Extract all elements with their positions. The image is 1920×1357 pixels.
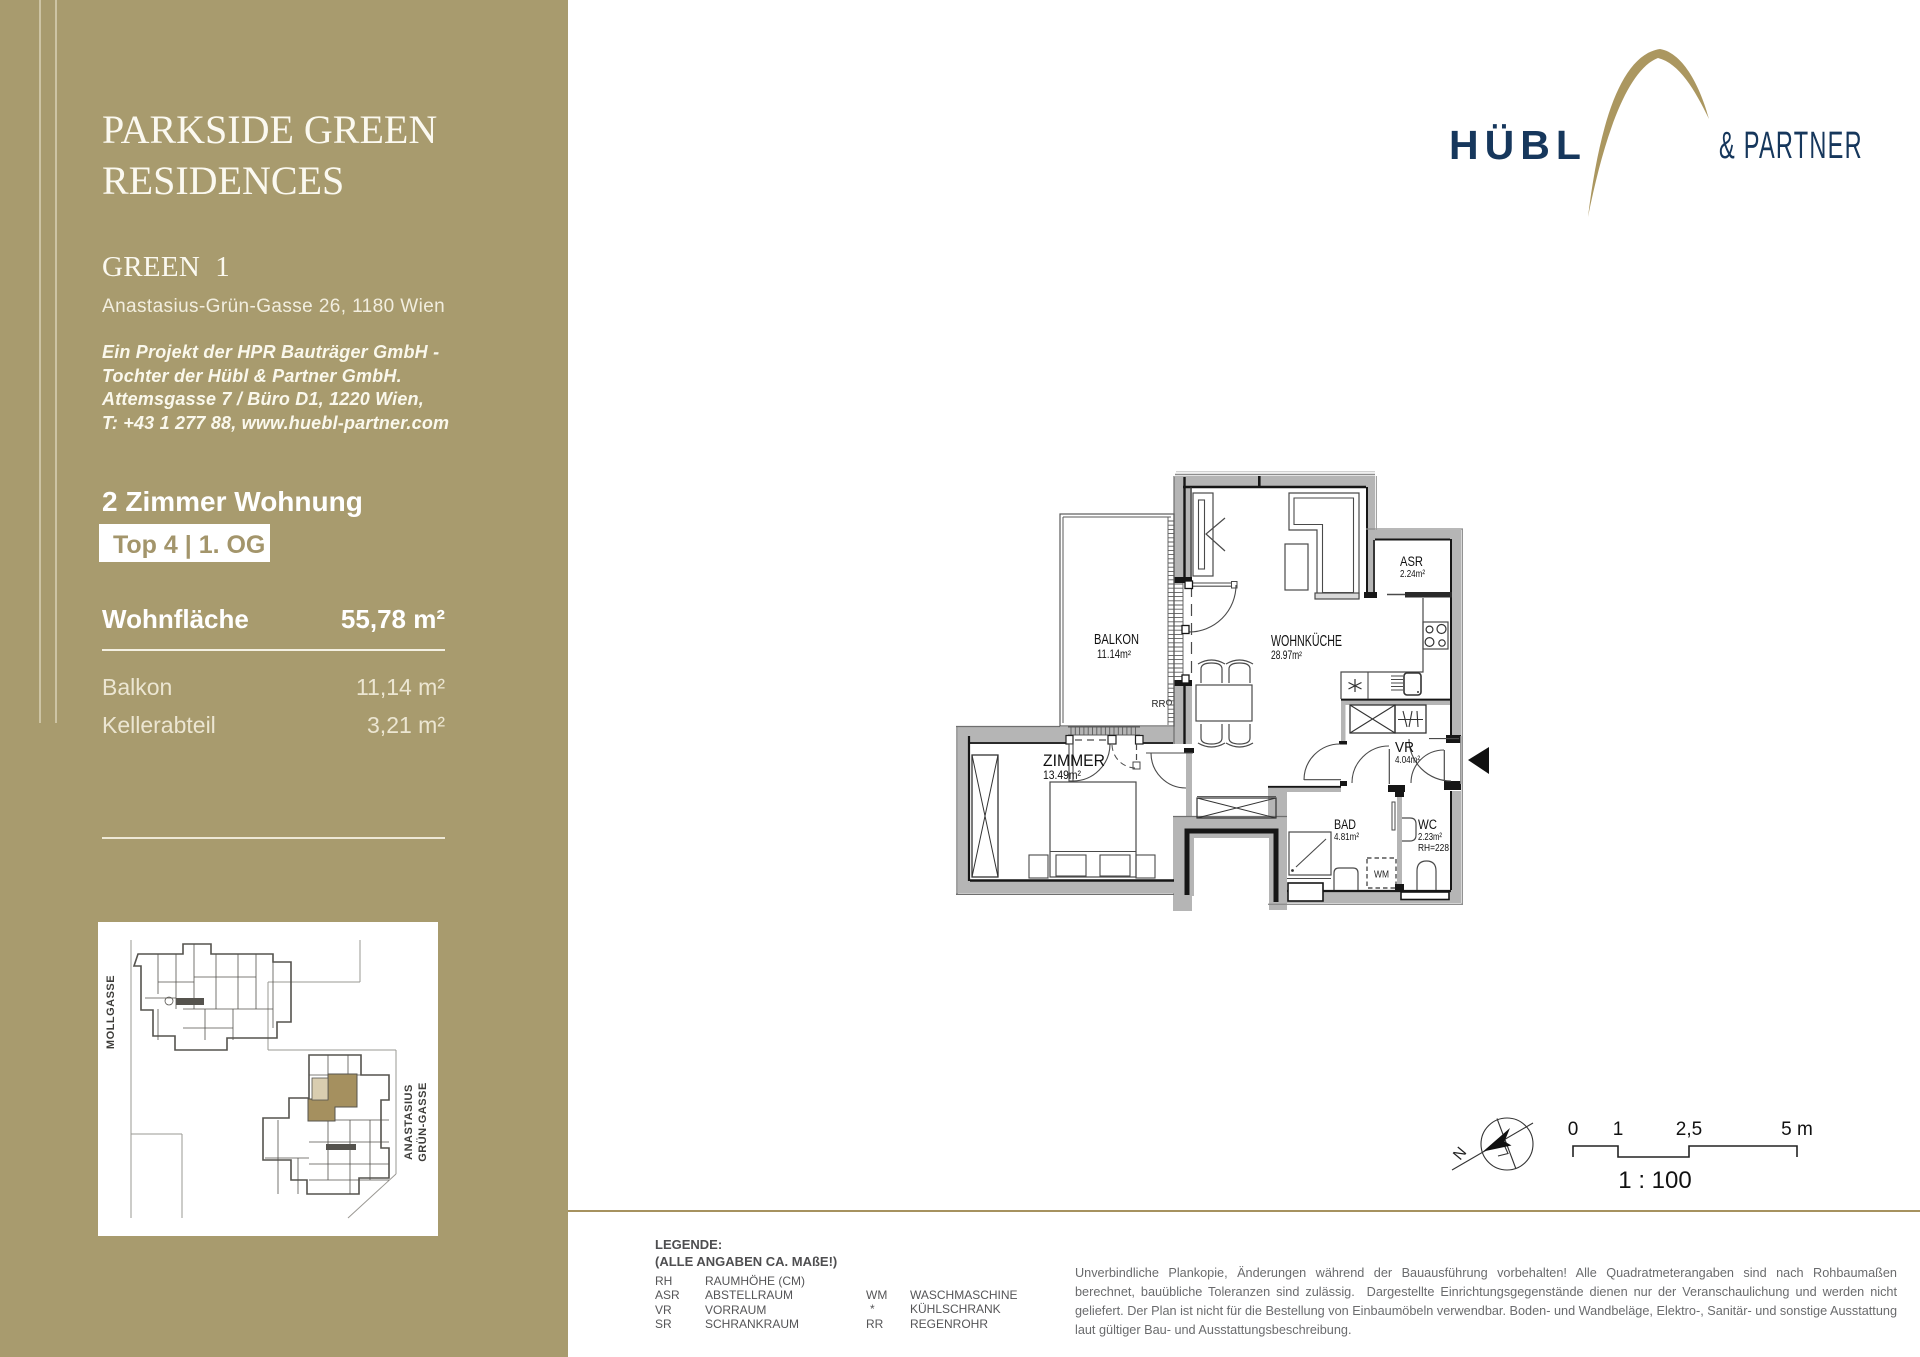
svg-text:4.81m²: 4.81m² xyxy=(1334,831,1359,843)
svg-text:2.23m²: 2.23m² xyxy=(1418,832,1443,843)
svg-text:28.97m²: 28.97m² xyxy=(1271,650,1302,662)
svg-text:RR: RR xyxy=(1152,699,1166,710)
svg-text:WOHNKÜCHE: WOHNKÜCHE xyxy=(1271,632,1342,650)
svg-text:GRÜN-GASSE: GRÜN-GASSE xyxy=(416,1082,429,1162)
svg-text:1: 1 xyxy=(1613,1119,1624,1140)
svg-text:13.49m²: 13.49m² xyxy=(1043,768,1081,782)
svg-text:BAD: BAD xyxy=(1334,817,1356,832)
svg-text:2,5: 2,5 xyxy=(1676,1119,1702,1140)
svg-text:0: 0 xyxy=(1568,1119,1579,1140)
svg-text:MOLLGASSE: MOLLGASSE xyxy=(105,975,117,1049)
svg-text:2.24m²: 2.24m² xyxy=(1400,568,1425,580)
svg-text:RH=228: RH=228 xyxy=(1418,843,1449,854)
svg-text:11.14m²: 11.14m² xyxy=(1097,649,1131,661)
svg-text:WC: WC xyxy=(1418,817,1437,832)
svg-text:ASR: ASR xyxy=(1400,554,1423,569)
svg-text:WM: WM xyxy=(1374,869,1389,881)
svg-text:ANASTASIUS: ANASTASIUS xyxy=(403,1084,415,1160)
svg-text:5 m: 5 m xyxy=(1781,1119,1813,1140)
svg-text:4.04m²: 4.04m² xyxy=(1395,754,1420,766)
svg-text:1 : 100: 1 : 100 xyxy=(1618,1167,1691,1194)
svg-text:BALKON: BALKON xyxy=(1094,632,1139,648)
